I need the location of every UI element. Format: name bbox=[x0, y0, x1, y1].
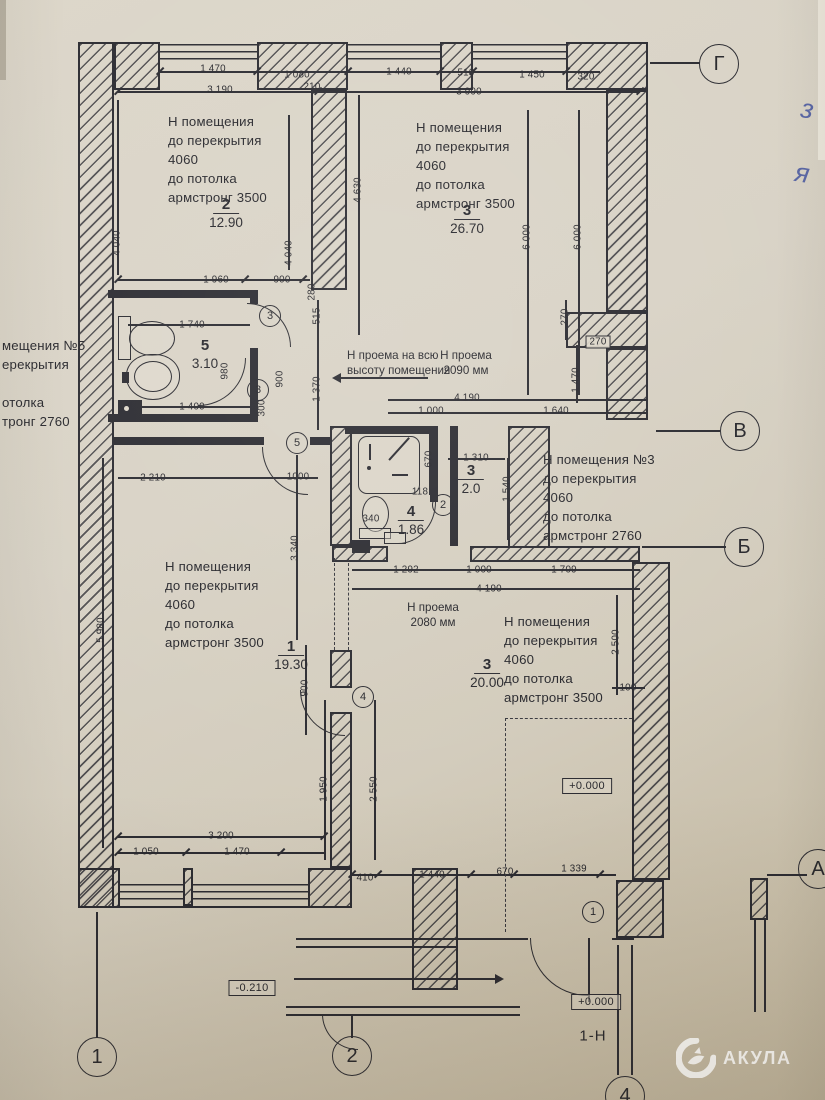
note-line: Н помещения bbox=[165, 557, 264, 576]
room-area: 2.0 bbox=[458, 480, 484, 496]
dimension-label: 1 470 bbox=[571, 367, 582, 393]
dimension-label: 300 bbox=[257, 400, 268, 417]
room-2-note: Н помещениядо перекрытия4060до потолкаар… bbox=[168, 112, 267, 207]
note-line: армстронг 3500 bbox=[165, 633, 264, 652]
dimension-label: 4 630 bbox=[353, 177, 364, 203]
note-line: Н помещения bbox=[168, 112, 267, 131]
dimension-label: 3 340 bbox=[290, 535, 301, 561]
elevation-mark: +0.000 bbox=[562, 778, 612, 794]
axis-marker-Г: Г bbox=[699, 44, 739, 84]
note-line: до перекрытия bbox=[416, 137, 515, 156]
door-tag-3: 3 bbox=[259, 305, 281, 327]
dimension-label: 1 640 bbox=[543, 406, 569, 417]
opening-2080: Н проема2080 мм bbox=[407, 600, 459, 630]
dimension-label: 1 370 bbox=[312, 376, 323, 402]
note-line: Н помещения №3 bbox=[543, 450, 655, 469]
elevation-mark: +0.000 bbox=[571, 994, 621, 1010]
dimension-label: 1 080 bbox=[284, 70, 310, 81]
dimension-label: 6 000 bbox=[573, 224, 584, 250]
room-area: 1.86 bbox=[398, 521, 424, 537]
dimension-label: 4 190 bbox=[454, 393, 480, 404]
axis-marker-А: А bbox=[798, 849, 825, 889]
note-line: Н помещения bbox=[504, 612, 603, 631]
opening-2090: Н проема2090 мм bbox=[440, 348, 492, 378]
room-3-mid-tag: 32.0 bbox=[458, 462, 484, 496]
dimension-label: 1 339 bbox=[561, 864, 587, 875]
opening-line: Н проема на всю bbox=[347, 348, 450, 363]
dimension-label: 3 190 bbox=[207, 85, 233, 96]
dimension-label: 6 000 bbox=[522, 224, 533, 250]
dimension-label: 1 470 bbox=[200, 64, 226, 75]
room-2-tag: 212.90 bbox=[209, 196, 243, 230]
dimension-label: 4 190 bbox=[476, 584, 502, 595]
dimension-label: 1 440 bbox=[419, 870, 445, 881]
note-line: 4060 bbox=[168, 150, 267, 169]
note-line: до потолка bbox=[165, 614, 264, 633]
room-area: 12.90 bbox=[209, 214, 243, 230]
note-line: 4060 bbox=[165, 595, 264, 614]
dimension-label: 670 bbox=[497, 867, 514, 878]
room-area: 26.70 bbox=[450, 220, 484, 236]
note-line: тронг 2760 bbox=[2, 412, 85, 431]
room-1-tag: 119.30 bbox=[274, 638, 308, 672]
dimension-label: 1 000 bbox=[466, 565, 492, 576]
door-tag-3: 3 bbox=[247, 379, 269, 401]
dimension-label: 515 bbox=[312, 308, 323, 325]
dimension-label: 1 740 bbox=[179, 320, 205, 331]
note-line: до потолка bbox=[168, 169, 267, 188]
door-tag-4: 4 bbox=[352, 686, 374, 708]
watermark-brand: АКУЛА bbox=[723, 1048, 792, 1069]
opening-line: 2080 мм bbox=[407, 615, 459, 630]
room-3-top-note: Н помещениядо перекрытия4060до потолкаар… bbox=[416, 118, 515, 213]
dimension-label: 3 200 bbox=[208, 831, 234, 842]
note-line: 4060 bbox=[543, 488, 655, 507]
dimension-label: 270 bbox=[560, 309, 571, 326]
dimension-label: 320 bbox=[578, 72, 595, 83]
dimension-label: 270 bbox=[586, 336, 611, 349]
room-area: 20.00 bbox=[470, 674, 504, 690]
note-line: ерекрытия bbox=[2, 355, 85, 374]
note-line: 4060 bbox=[416, 156, 515, 175]
dimension-label: 1 540 bbox=[502, 476, 513, 502]
dimension-label: 1 960 bbox=[203, 275, 229, 286]
dimension-label: 1000 bbox=[287, 472, 310, 483]
annotation-layer: 1 4701 0802103 1901 4405101 4503203 9904… bbox=[0, 0, 825, 1100]
axis-marker-В: В bbox=[720, 411, 760, 451]
dimension-label: 900 bbox=[275, 371, 286, 388]
elevation-mark: -0.210 bbox=[229, 980, 276, 996]
watermark: АКУЛА bbox=[676, 1038, 792, 1078]
dimension-label: 2 550 bbox=[369, 776, 380, 802]
room-number: 3 bbox=[474, 656, 500, 674]
dimension-label: 510 bbox=[458, 68, 475, 79]
door-tag-2: 2 bbox=[432, 494, 454, 516]
dimension-label: 670 bbox=[424, 451, 435, 468]
dimension-label: 900 bbox=[300, 680, 311, 697]
note-line: армстронг 2760 bbox=[543, 526, 655, 545]
floor-plan-photo: 1 4701 0802103 1901 4405101 4503203 9904… bbox=[0, 0, 825, 1100]
room-3-top-tag: 326.70 bbox=[450, 202, 484, 236]
opening-line: Н проема bbox=[440, 348, 492, 363]
note-line: до потолка bbox=[543, 507, 655, 526]
dimension-label: 1 000 bbox=[418, 406, 444, 417]
room-area: 19.30 bbox=[274, 656, 308, 672]
note-line: до потолка bbox=[416, 175, 515, 194]
axis-marker-2: 2 bbox=[332, 1036, 372, 1076]
room-number: 3 bbox=[458, 462, 484, 480]
dimension-label: 1 050 bbox=[133, 847, 159, 858]
opening-line: высоту помещения bbox=[347, 363, 450, 378]
note-line: Н помещения bbox=[416, 118, 515, 137]
note-line: до потолка bbox=[504, 669, 603, 688]
note-line: 4060 bbox=[504, 650, 603, 669]
dimension-label: 4 040 bbox=[112, 230, 123, 256]
dimension-label: 340 bbox=[363, 514, 380, 525]
dimension-label: 1 470 bbox=[224, 847, 250, 858]
dimension-label: 2 210 bbox=[140, 473, 166, 484]
note-line: армстронг 3500 bbox=[504, 688, 603, 707]
dimension-label: 1 950 bbox=[319, 776, 330, 802]
axis-marker-1: 1 bbox=[77, 1037, 117, 1077]
note-room-3-note: Н помещения №3до перекрытия4060до потолк… bbox=[543, 450, 655, 545]
room-3-bottom-tag: 320.00 bbox=[470, 656, 504, 690]
dimension-label: 100 bbox=[620, 683, 637, 694]
door-tag-5: 5 bbox=[286, 432, 308, 454]
dimension-label: 4 040 bbox=[284, 240, 295, 266]
axis-marker-4: 4 bbox=[605, 1076, 645, 1100]
dimension-label: 900 bbox=[274, 275, 291, 286]
room-number: 2 bbox=[213, 196, 239, 214]
dimension-label: 118 bbox=[412, 487, 428, 498]
dimension-label: 1 440 bbox=[386, 67, 412, 78]
room-4-tag: 41.86 bbox=[398, 503, 424, 537]
paper-edge bbox=[0, 0, 6, 80]
dimension-label: 410 bbox=[357, 873, 374, 884]
note-left-cut-note: мещения №5ерекрытия отолкатронг 2760 bbox=[2, 336, 85, 431]
room-number: 5 bbox=[192, 337, 218, 354]
room-area: 3.10 bbox=[192, 355, 218, 371]
room-3-bottom-note: Н помещениядо перекрытия4060до потолкаар… bbox=[504, 612, 603, 707]
room-number: 4 bbox=[398, 503, 424, 521]
note-line: мещения №5 bbox=[2, 336, 85, 355]
room-number: 1 bbox=[278, 638, 304, 656]
shark-icon bbox=[676, 1038, 716, 1078]
room-number: 3 bbox=[454, 202, 480, 220]
opening-full-height: Н проема на всювысоту помещения bbox=[347, 348, 450, 378]
note-line: до перекрытия bbox=[168, 131, 267, 150]
dimension-label: 280 bbox=[307, 284, 318, 301]
axis-marker-Б: Б bbox=[724, 527, 764, 567]
dimension-label: 1 450 bbox=[519, 70, 545, 81]
room-1-note: Н помещениядо перекрытия4060до потолкаар… bbox=[165, 557, 264, 652]
dimension-label: 1 400 bbox=[179, 402, 205, 413]
note-line: отолка bbox=[2, 393, 85, 412]
dimension-label: 980 bbox=[220, 363, 231, 380]
dimension-label: 1 292 bbox=[393, 565, 419, 576]
opening-line: Н проема bbox=[407, 600, 459, 615]
door-tag-1: 1 bbox=[582, 901, 604, 923]
note-line: до перекрытия bbox=[543, 469, 655, 488]
room-5-tag: 53.10 bbox=[192, 337, 218, 371]
note-line bbox=[2, 374, 85, 393]
dimension-label: 210 bbox=[304, 82, 321, 93]
opening-line: 2090 мм bbox=[440, 363, 492, 378]
dimension-label: 3 990 bbox=[456, 87, 482, 98]
paper-edge bbox=[818, 0, 825, 160]
dimension-label: 2 500 bbox=[611, 629, 622, 655]
note-line: до перекрытия bbox=[504, 631, 603, 650]
dimension-label: 1 709 bbox=[551, 565, 577, 576]
dimension-label: 5 980 bbox=[96, 617, 107, 643]
note-line: до перекрытия bbox=[165, 576, 264, 595]
